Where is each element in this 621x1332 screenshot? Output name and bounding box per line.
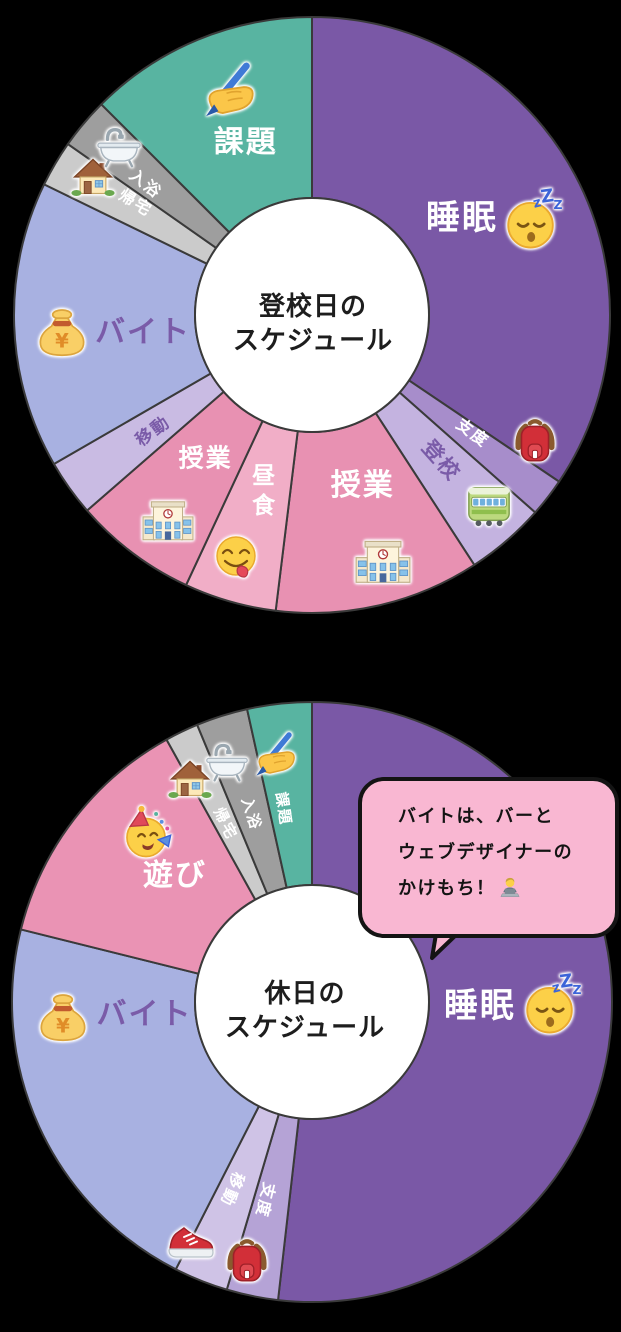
bathtub-icon: [204, 739, 250, 785]
segment-label: 遊び: [143, 861, 207, 891]
speech-bubble-line: バイトは、バーと: [398, 798, 603, 834]
backpack-icon: [509, 415, 561, 467]
chart-title-line: スケジュール: [225, 1011, 385, 1045]
infographic-canvas: 睡眠支度登校授業昼食授業移動バイト帰宅入浴課題睡眠支度移動バイト遊び帰宅入浴課題…: [0, 0, 621, 1332]
segment-label: バイト: [97, 1000, 193, 1030]
chart-title-line: 休日の: [225, 977, 385, 1011]
yum-face-icon: [211, 532, 261, 582]
chart-title-line: 登校日の: [233, 290, 393, 324]
segment-label: 睡眠: [426, 201, 498, 235]
money-bag-icon: [33, 303, 91, 361]
backpack-icon: [221, 1235, 273, 1287]
segment-label: 授業: [179, 446, 233, 471]
bathtub-icon: [95, 123, 143, 171]
sleeping-face-icon: [502, 188, 564, 250]
segment-label: 課題: [214, 128, 278, 158]
segment-label: 睡眠: [444, 989, 516, 1023]
speech-bubble-line: ウェブデザイナーの: [398, 834, 603, 870]
money-bag-icon: [34, 988, 92, 1046]
writing-hand-icon: [250, 731, 300, 781]
school-icon: [142, 494, 194, 546]
chart-title-school-day: 登校日の スケジュール: [233, 290, 393, 358]
speech-bubble-text: かけもち！: [398, 878, 496, 898]
speech-bubble-line: かけもち！: [398, 870, 603, 906]
speech-bubble: バイトは、バーと ウェブデザイナーの かけもち！: [358, 777, 619, 938]
sleeping-face-icon: [521, 973, 583, 1035]
party-face-icon: [118, 805, 174, 861]
school-icon: [355, 533, 411, 589]
segment-label: バイト: [95, 318, 191, 348]
train-icon: [465, 481, 513, 529]
segment-label: 昼食: [250, 463, 273, 523]
segment-label: 授業: [331, 471, 395, 501]
chart-title-holiday: 休日の スケジュール: [225, 977, 385, 1045]
sneaker-icon: [166, 1214, 216, 1264]
writing-hand-icon: [198, 61, 260, 123]
technologist-icon: [498, 875, 522, 899]
chart-title-line: スケジュール: [233, 324, 393, 358]
